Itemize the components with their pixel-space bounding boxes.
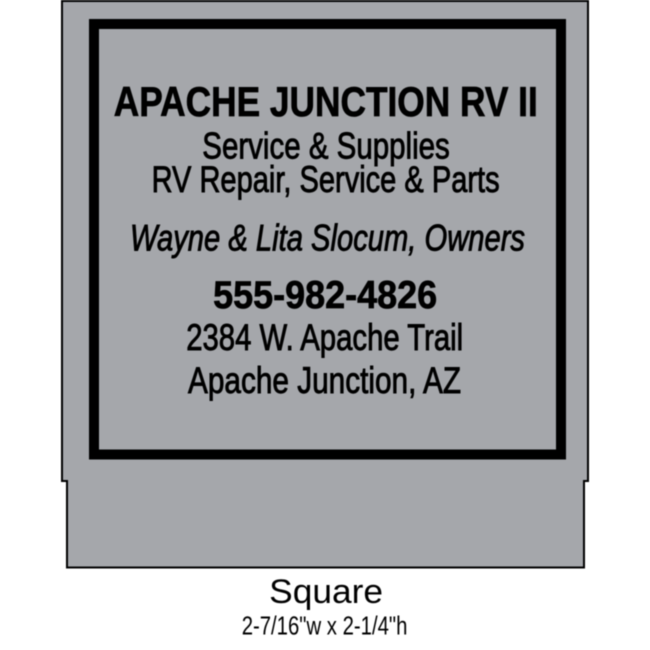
svg-text:2384 W. Apache Trail: 2384 W. Apache Trail [186,316,463,358]
svg-text:APACHE JUNCTION RV II: APACHE JUNCTION RV II [114,78,538,125]
svg-text:Square: Square [269,573,383,611]
svg-text:2-7/16"w x 2-1/4"h: 2-7/16"w x 2-1/4"h [242,610,408,640]
svg-text:Wayne & Lita Slocum, Owners: Wayne & Lita Slocum, Owners [130,218,525,259]
svg-text:Apache Junction, AZ: Apache Junction, AZ [188,359,461,401]
svg-text:RV Repair, Service & Parts: RV Repair, Service & Parts [152,158,500,200]
svg-text:555-982-4826: 555-982-4826 [213,274,437,317]
